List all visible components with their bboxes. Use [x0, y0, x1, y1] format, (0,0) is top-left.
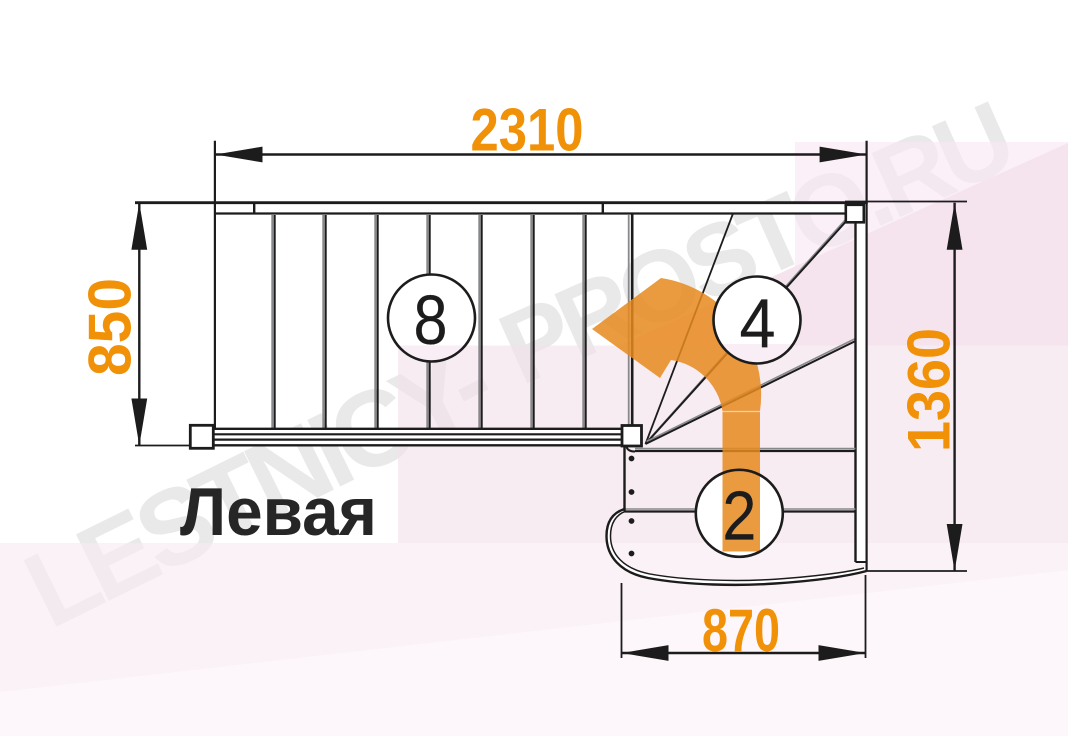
svg-text:2: 2	[722, 477, 756, 555]
svg-text:850: 850	[77, 278, 144, 376]
svg-text:8: 8	[414, 281, 448, 359]
svg-text:4: 4	[740, 285, 776, 363]
svg-text:Левая: Левая	[180, 474, 377, 550]
svg-text:870: 870	[702, 597, 780, 664]
svg-text:2310: 2310	[471, 97, 584, 164]
svg-text:1360: 1360	[896, 328, 963, 452]
